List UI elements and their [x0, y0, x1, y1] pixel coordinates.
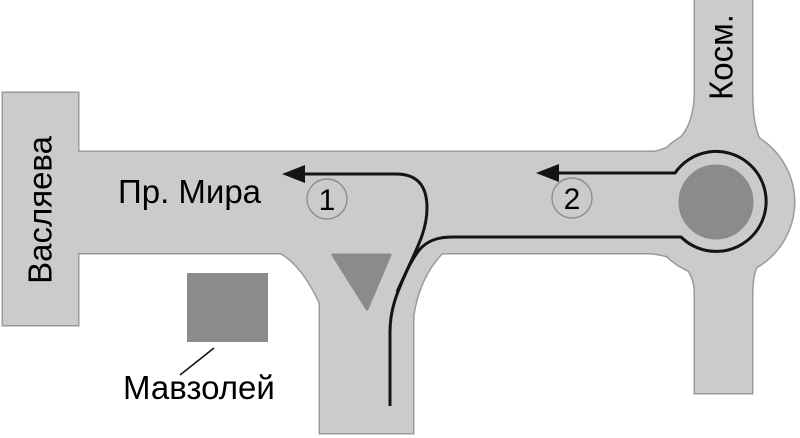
route-1-badge-label: 1 — [319, 184, 336, 217]
roundabout-island — [680, 166, 752, 238]
left-road-label: Васляева — [22, 135, 59, 284]
top-road-label: Косм. — [703, 14, 740, 100]
main-road-label: Пр. Мира — [118, 173, 262, 210]
road-network-fill — [3, 0, 794, 433]
mausoleum-label: Мавзолей — [123, 369, 275, 406]
traffic-scheme-diagram: 1 2 Васляева Пр. Мира Косм. Мавзолей — [0, 0, 800, 438]
road-bottom-right — [695, 258, 752, 393]
route-2-badge-label: 2 — [564, 183, 581, 216]
mausoleum-building — [187, 273, 268, 342]
